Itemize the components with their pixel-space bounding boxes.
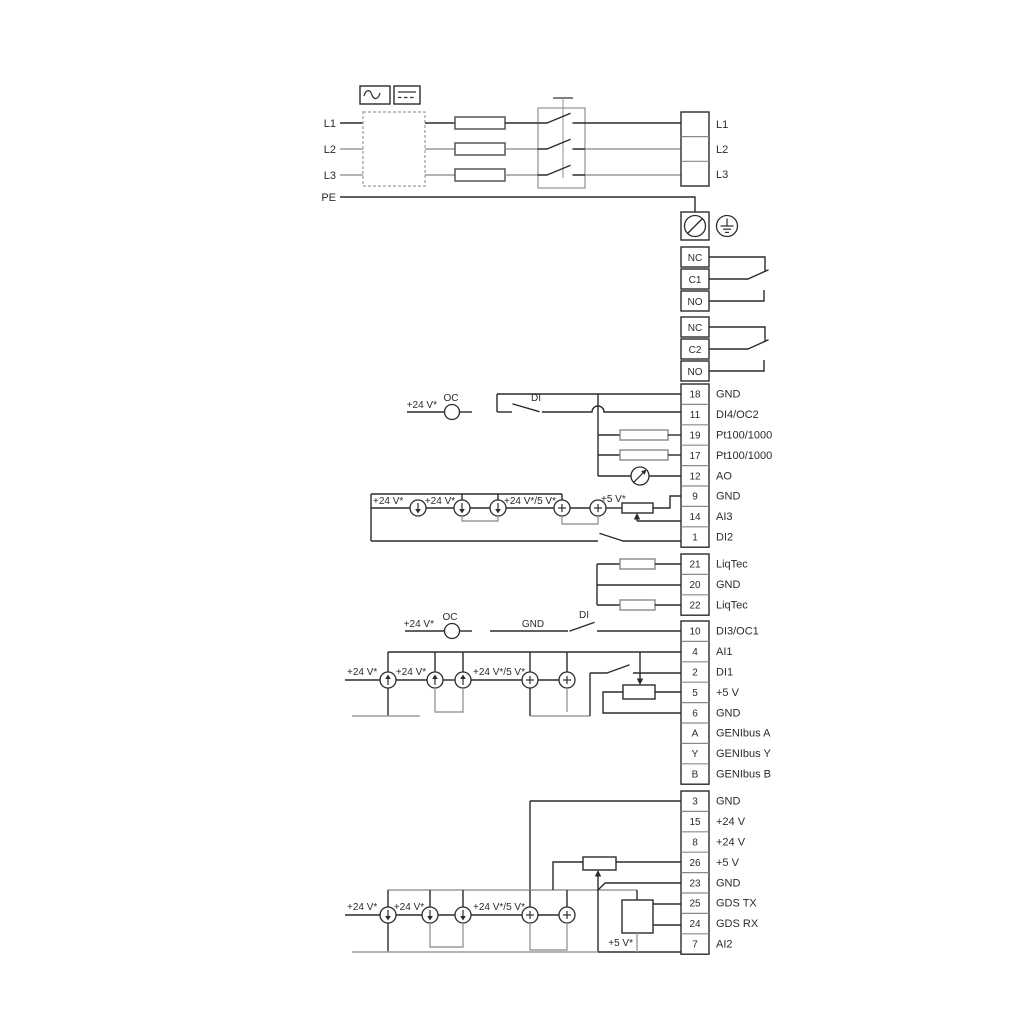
terminal-22: 22 [689, 601, 701, 612]
power-terminal-block [681, 112, 709, 186]
label-24v5v-ai2: +24 V*/5 V* [473, 902, 525, 913]
voltage-source-icon [522, 907, 538, 923]
terminal-26-label: +5 V [716, 857, 740, 869]
di3-row: +24 V* OC GND DI [404, 610, 681, 639]
terminal-19-label: Pt100/1000 [716, 430, 772, 442]
relay2-block: NC C2 NO [681, 317, 768, 381]
terminal-14-label: AI3 [716, 511, 733, 523]
terminal-17-label: Pt100/1000 [716, 450, 772, 462]
terminal-12: 12 [689, 471, 701, 482]
terminal-6: 6 [692, 708, 698, 719]
label-24v-ai3-1: +24 V* [373, 496, 403, 507]
current-source-icon [380, 907, 396, 923]
voltage-source-icon [554, 500, 570, 516]
relay1-block: NC C1 NO [681, 247, 768, 311]
pt100-sensor-1 [620, 430, 668, 440]
label-24v-ai2-1: +24 V* [347, 902, 377, 913]
terminal-20-label: GND [716, 579, 741, 591]
terminal-12-label: AO [716, 470, 732, 482]
terminal-4-label: AI1 [716, 646, 733, 658]
mains-filter-box [363, 112, 425, 186]
fuse-l1 [455, 117, 505, 129]
fuse-l2 [455, 143, 505, 155]
wiring-diagram: L1 L2 L3 PE [0, 0, 1024, 1024]
label-24v-ai3-2: +24 V* [425, 496, 455, 507]
strip1-wiring: +24 V* OC DI [407, 393, 681, 485]
relay1-c1: C1 [689, 275, 702, 286]
terminal-17: 17 [689, 451, 701, 462]
relay2-no: NO [688, 367, 703, 378]
di4-wire-hop [542, 406, 681, 412]
terminal-15: 15 [689, 817, 701, 828]
relay1-nc: NC [688, 253, 702, 264]
analog-output-meter-icon [631, 467, 649, 485]
terminal-4: 4 [692, 647, 698, 658]
current-source-icon [455, 907, 471, 923]
current-source-icon [422, 907, 438, 923]
potentiometer-ai3 [622, 503, 653, 521]
terminal-25: 25 [689, 899, 701, 910]
label-di-di4: DI [531, 393, 541, 404]
terminal-8: 8 [692, 838, 698, 849]
label-oc-di3: OC [443, 612, 458, 623]
terminal-y-label: GENIbus Y [716, 748, 771, 760]
terminal-22-label: LiqTec [716, 600, 748, 612]
terminal-b: B [692, 770, 699, 781]
current-source-icon [380, 672, 396, 688]
terminal-5-label: +5 V [716, 687, 740, 699]
terminal-11: 11 [690, 410, 701, 421]
voltage-source-icon [559, 672, 575, 688]
current-source-icon [427, 672, 443, 688]
label-di-di3: DI [579, 610, 589, 621]
wiring-diagram-page: L1 L2 L3 PE [0, 0, 1024, 1024]
terminal-10-label: DI3/OC1 [716, 626, 759, 638]
power-in-label-l2: L2 [324, 144, 336, 156]
terminal-19: 19 [689, 431, 701, 442]
open-collector-icon [445, 624, 460, 639]
liqtec-sensor-1 [620, 559, 655, 569]
pe-terminal-icon [681, 212, 709, 240]
terminal-7-label: AI2 [716, 939, 733, 951]
earth-ground-icon [717, 216, 738, 237]
power-out-label-l3: L3 [716, 169, 728, 181]
terminal-a: A [692, 729, 699, 740]
terminal-y: Y [692, 749, 699, 760]
terminal-11-label: DI4/OC2 [716, 409, 759, 421]
relay2-c2: C2 [689, 345, 702, 356]
ac-symbol-icon [360, 86, 390, 104]
terminal-1-label: DI2 [716, 532, 733, 544]
terminal-18: 18 [689, 390, 701, 401]
terminal-a-label: GENIbus A [716, 728, 771, 740]
terminal-1: 1 [692, 533, 698, 544]
terminal-9: 9 [692, 492, 698, 503]
terminal-7: 7 [692, 940, 698, 951]
label-24v5v-ai3: +24 V*/5 V* [504, 496, 556, 507]
label-gnd-di3: GND [522, 619, 544, 630]
terminal-b-label: GENIbus B [716, 769, 771, 781]
potentiometer-ai2 [583, 857, 616, 877]
label-24v-ai2-2: +24 V* [394, 902, 424, 913]
power-out-label-l1: L1 [716, 119, 728, 131]
terminal-24: 24 [689, 919, 701, 930]
terminal-8-label: +24 V [716, 837, 746, 849]
power-in-label-l1: L1 [324, 118, 336, 130]
label-24v5v-ai1: +24 V*/5 V* [473, 667, 525, 678]
terminal-5: 5 [692, 688, 698, 699]
terminal-20: 20 [689, 580, 701, 591]
current-source-icon [454, 500, 470, 516]
ai3-source-chain: +24 V* +24 V* +24 V*/5 V* +5 V* [371, 494, 681, 541]
liqtec-sensor-2 [620, 600, 655, 610]
current-source-icon [455, 672, 471, 688]
voltage-source-icon [590, 500, 606, 516]
current-source-icon [490, 500, 506, 516]
terminal-15-label: +24 V [716, 816, 746, 828]
terminal-14: 14 [689, 512, 701, 523]
potentiometer-ai1 [623, 685, 655, 699]
main-switch [538, 98, 585, 188]
label-24v-di4: +24 V* [407, 400, 437, 411]
label-oc-di4: OC [444, 393, 459, 404]
terminal-24-label: GDS RX [716, 918, 759, 930]
terminal-25-label: GDS TX [716, 898, 757, 910]
fuse-l3 [455, 169, 505, 181]
terminal-21: 21 [689, 560, 701, 571]
terminal-strip-4: 3 15 8 26 23 25 24 7 GND +24 V +24 V +5 … [681, 791, 759, 954]
terminal-strip-3: 10 4 2 5 6 A Y B DI3/OC1 AI1 DI1 +5 V GN… [681, 621, 771, 784]
terminal-23-label: GND [716, 877, 741, 889]
terminal-strip-1: 18 11 19 17 12 9 14 1 GND DI4/OC2 Pt100/… [681, 384, 772, 547]
power-in-label-l3: L3 [324, 170, 336, 182]
terminal-26: 26 [689, 858, 701, 869]
terminal-3: 3 [692, 797, 698, 808]
terminal-9-label: GND [716, 491, 741, 503]
terminal-21-label: LiqTec [716, 559, 748, 571]
label-24v-di3: +24 V* [404, 619, 434, 630]
label-5v-gds: +5 V* [608, 938, 633, 949]
relay2-nc: NC [688, 323, 702, 334]
terminal-18-label: GND [716, 389, 741, 401]
terminal-strip-2: 21 20 22 LiqTec GND LiqTec [681, 554, 748, 615]
ai2-source-chain: +24 V* +24 V* +24 V*/5 V* [345, 801, 681, 952]
terminal-10: 10 [689, 627, 701, 638]
open-collector-icon [445, 405, 460, 420]
liqtec-wiring [597, 559, 681, 610]
label-24v-ai1-1: +24 V* [347, 667, 377, 678]
power-in-label-pe: PE [321, 192, 336, 204]
pt100-sensor-2 [620, 450, 668, 460]
terminal-23: 23 [689, 878, 701, 889]
dc-symbol-icon [394, 86, 420, 104]
terminal-3-label: GND [716, 796, 741, 808]
terminal-2: 2 [692, 668, 698, 679]
voltage-source-icon [522, 672, 538, 688]
label-24v-ai1-2: +24 V* [396, 667, 426, 678]
terminal-6-label: GND [716, 707, 741, 719]
relay1-no: NO [688, 297, 703, 308]
power-out-label-l2: L2 [716, 144, 728, 156]
power-section: L1 L2 L3 PE [321, 86, 737, 240]
current-source-icon [410, 500, 426, 516]
terminal-2-label: DI1 [716, 667, 733, 679]
ai1-source-chain: +24 V* +24 V* +24 V*/5 V* [345, 652, 681, 716]
voltage-source-icon [559, 907, 575, 923]
